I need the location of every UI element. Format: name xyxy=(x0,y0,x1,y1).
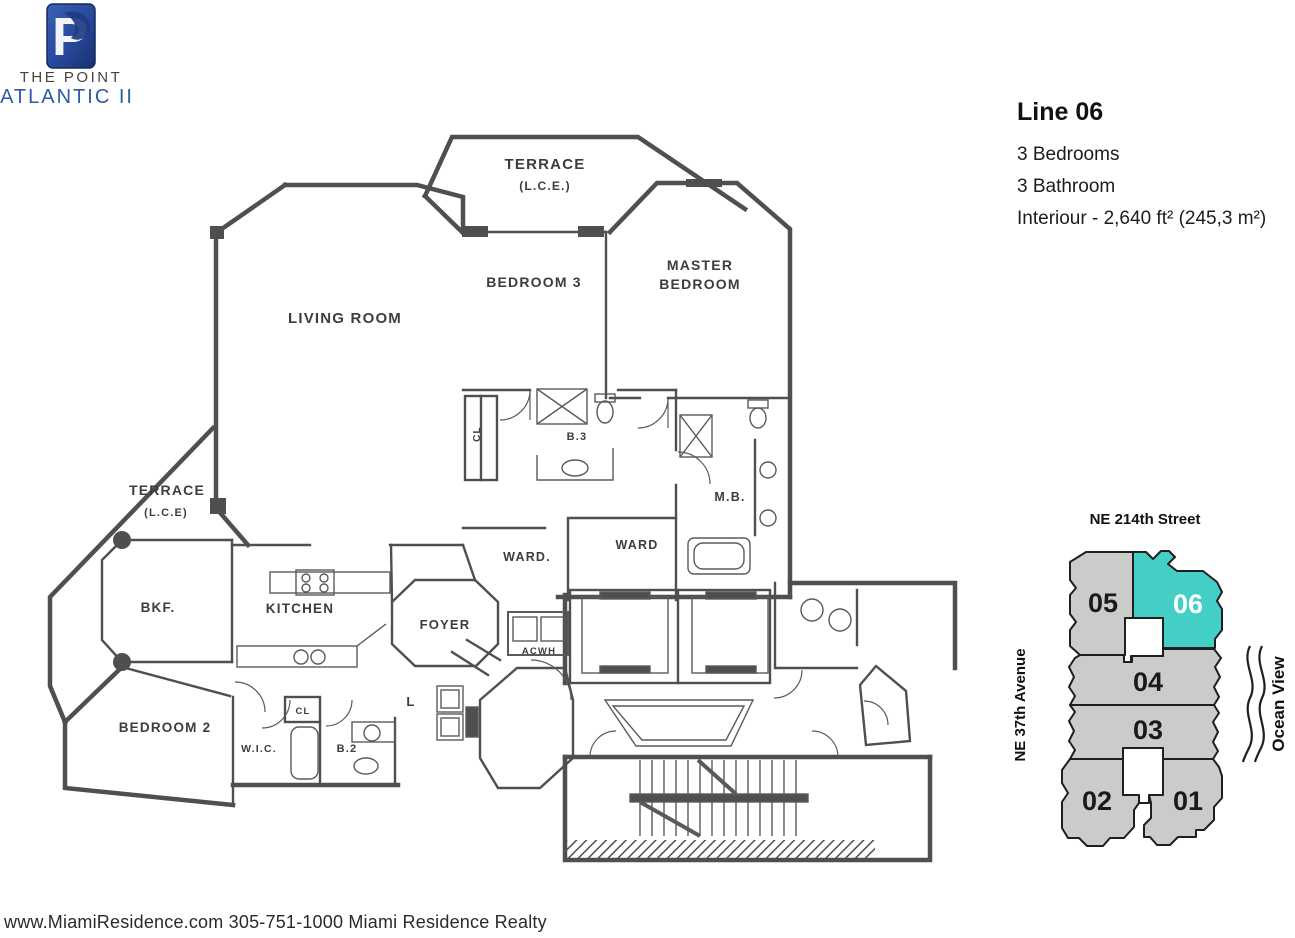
label-acwh: ACWH xyxy=(522,646,556,657)
floorplan-drawing: TERRACE (L.C.E.) BEDROOM 3 MASTER BEDROO… xyxy=(0,110,980,910)
brand-name-bottom: ATLANTIC II xyxy=(0,86,134,108)
label-mb: M.B. xyxy=(714,490,745,504)
flyer-page: P THE POINT ATLANTIC II Line 06 3 Bedroo… xyxy=(0,0,1295,938)
ocean-waves-icon xyxy=(1243,646,1265,762)
ocean-view-label: Ocean View xyxy=(1269,656,1288,752)
label-b2: B.2 xyxy=(337,743,358,755)
label-bedroom3: BEDROOM 3 xyxy=(486,274,582,290)
unit-04-label: 04 xyxy=(1133,667,1163,697)
label-terrace-top-sub: (L.C.E.) xyxy=(519,179,571,193)
unit-06-label: 06 xyxy=(1173,589,1203,619)
spec-bathrooms: 3 Bathroom xyxy=(1017,171,1295,203)
outer-walls xyxy=(50,137,955,860)
brand-name-top: THE POINT xyxy=(20,69,123,86)
label-wic: W.I.C. xyxy=(241,743,277,755)
label-terrace-top: TERRACE xyxy=(505,156,586,173)
label-bkf: BKF. xyxy=(141,600,176,615)
unit-line-title: Line 06 xyxy=(1017,98,1295,127)
label-living: LIVING ROOM xyxy=(288,310,402,327)
footer-contact: www.MiamiResidence.com 305-751-1000 Miam… xyxy=(4,912,547,933)
label-bedroom2: BEDROOM 2 xyxy=(119,720,212,735)
spec-interior-area: Interiour - 2,640 ft² (245,3 m²) xyxy=(1017,203,1295,235)
unit-03-label: 03 xyxy=(1133,715,1163,745)
brand-logo: P THE POINT ATLANTIC II xyxy=(0,0,170,120)
label-b3: B.3 xyxy=(567,431,588,443)
label-cl-small: CL xyxy=(295,706,310,717)
core-cutout-top xyxy=(1124,618,1163,662)
unit-specs: Line 06 3 Bedrooms 3 Bathroom Interiour … xyxy=(1017,98,1295,235)
fixtures xyxy=(237,389,875,858)
label-kitchen: KITCHEN xyxy=(266,601,334,616)
building-keyplan: NE 214th Street NE 37th Avenue 05 06 04 … xyxy=(1000,500,1295,880)
unit-02-label: 02 xyxy=(1082,786,1112,816)
unit-01-label: 01 xyxy=(1173,786,1203,816)
label-terrace-left: TERRACE xyxy=(129,482,205,498)
label-laundry: L xyxy=(406,694,415,709)
label-ward2: WARD xyxy=(616,538,659,552)
unit-05-label: 05 xyxy=(1088,588,1118,618)
label-foyer: FOYER xyxy=(420,617,471,632)
label-ward1: WARD. xyxy=(503,550,551,564)
spec-bedrooms: 3 Bedrooms xyxy=(1017,139,1295,171)
label-terrace-left-sub: (L.C.E) xyxy=(144,507,188,519)
label-cl-b3: CL xyxy=(472,426,483,442)
avenue-label: NE 37th Avenue xyxy=(1012,648,1029,761)
street-label: NE 214th Street xyxy=(1090,511,1201,528)
core-cutout-bottom xyxy=(1123,748,1163,803)
label-master-2: BEDROOM xyxy=(659,276,741,292)
label-master-1: MASTER xyxy=(667,257,733,273)
